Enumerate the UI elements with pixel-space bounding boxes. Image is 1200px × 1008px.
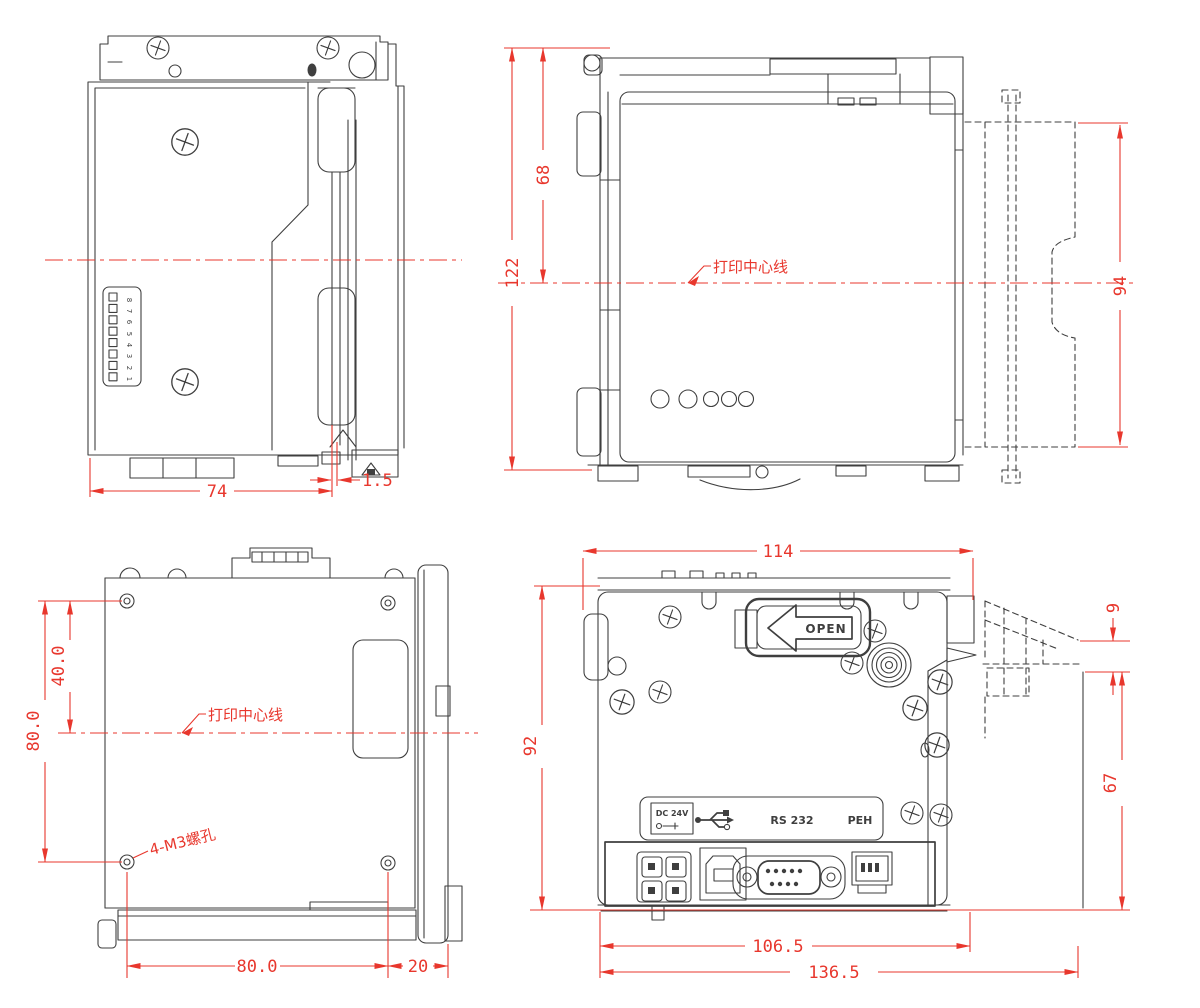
usb-b-port <box>700 848 746 900</box>
dip-number: 4 <box>125 343 133 348</box>
dim-edge-20: 20 <box>408 957 428 977</box>
side-view-screws <box>147 37 339 395</box>
mounting-hole-label: 4-M3螺孔 <box>148 825 218 859</box>
adjuster-washer <box>867 643 911 687</box>
connector-bay <box>605 842 935 920</box>
dip-number: 1 <box>125 377 133 381</box>
dim-width-114: 114 <box>763 542 794 562</box>
dip-number: 8 <box>125 298 133 302</box>
dim-hole-to-center-40: 40.0 <box>49 646 69 687</box>
side-dimensions: 74 1.5 <box>90 425 393 502</box>
front-dimensions: 122 68 94 <box>503 48 1131 470</box>
view-bottom: 打印中心线 4-M3螺孔 40.0 80.0 80.0 20 <box>24 548 478 978</box>
dip-number: 2 <box>125 366 133 370</box>
print-centerline-label: 打印中心线 <box>208 706 283 724</box>
view-rear: OPEN DC 24V <box>521 542 1130 983</box>
bottom-view-outline <box>98 548 462 948</box>
side-view-outline <box>88 36 404 478</box>
platen-knurl <box>930 57 963 114</box>
rear-dimensions: 114 92 9 67 106.5 136.5 <box>521 542 1130 983</box>
open-latch: OPEN <box>735 599 870 656</box>
sensor-connector <box>852 852 892 893</box>
sensor-label: PEH <box>848 814 873 827</box>
dim-lip-9: 9 <box>1104 603 1124 613</box>
drawing-sheet: 8 7 6 5 4 3 2 1 74 1.5 <box>0 0 1200 1008</box>
dim-bezel-67: 67 <box>1101 773 1121 793</box>
serial-label: RS 232 <box>770 814 813 827</box>
front-centerline-label: 打印中心线 <box>688 258 788 286</box>
bottom-centerline-label: 打印中心线 <box>182 706 283 736</box>
dip-number: 5 <box>125 332 133 336</box>
rear-bezel-dashed <box>983 601 1083 738</box>
mounting-holes <box>120 594 395 870</box>
dip-number: 3 <box>125 354 133 358</box>
dip-number: 7 <box>125 309 133 313</box>
status-leds <box>651 390 754 408</box>
view-front: 打印中心线 122 68 94 <box>498 48 1138 490</box>
usb-icon <box>695 810 734 830</box>
printer-dimension-drawing: 8 7 6 5 4 3 2 1 74 1.5 <box>0 0 1200 1008</box>
bottom-dimensions: 40.0 80.0 80.0 20 <box>24 601 448 978</box>
dim-overall-136-5: 136.5 <box>808 963 859 983</box>
dim-mount-106-5: 106.5 <box>752 937 803 957</box>
power-label: DC 24V <box>656 809 689 818</box>
dim-bezel-94: 94 <box>1111 276 1131 296</box>
dim-hole-pitch-80h: 80.0 <box>237 957 278 977</box>
front-bezel-dashed <box>965 90 1075 483</box>
dim-width-74: 74 <box>207 482 227 502</box>
open-label: OPEN <box>805 622 846 636</box>
connector-label-panel: DC 24V RS 232 PEH <box>640 797 883 840</box>
dim-cutter-offset: 1.5 <box>362 471 393 491</box>
print-centerline-label: 打印中心线 <box>713 258 788 276</box>
dim-center-68: 68 <box>534 165 554 185</box>
dim-height-122: 122 <box>503 258 523 289</box>
dim-height-92: 92 <box>521 736 541 756</box>
hole-callout: 4-M3螺孔 <box>133 825 217 859</box>
dip-switch: 8 7 6 5 4 3 2 1 <box>103 287 141 386</box>
dim-hole-pitch-80v: 80.0 <box>24 711 44 752</box>
db9-serial-port <box>733 856 845 899</box>
view-side-left: 8 7 6 5 4 3 2 1 74 1.5 <box>45 36 462 502</box>
dip-number: 6 <box>125 320 133 325</box>
